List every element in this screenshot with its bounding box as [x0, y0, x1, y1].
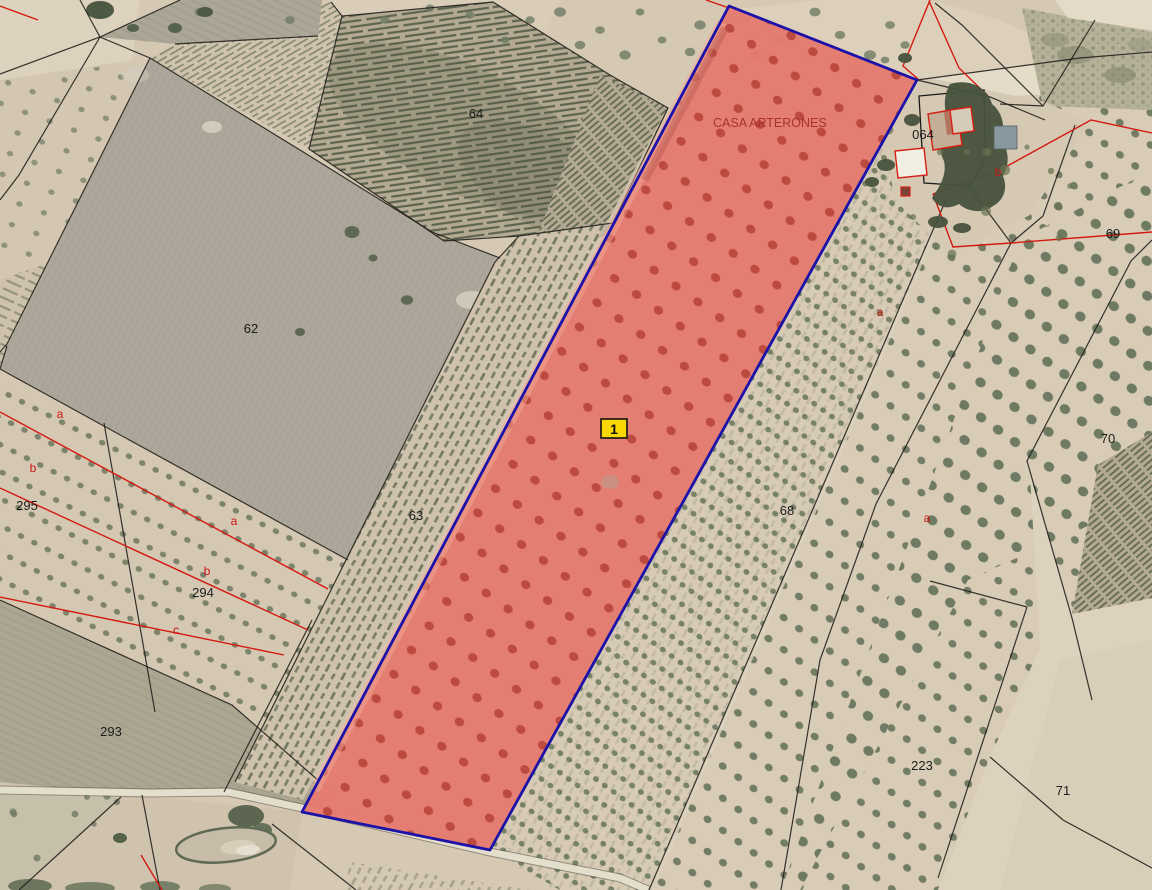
svg-text:293: 293 [100, 724, 122, 739]
svg-text:b: b [30, 461, 37, 475]
svg-text:63: 63 [409, 508, 423, 523]
svg-text:71: 71 [1056, 783, 1070, 798]
svg-text:68: 68 [780, 503, 794, 518]
svg-text:64: 64 [469, 106, 483, 121]
svg-text:a: a [924, 511, 931, 525]
svg-text:1: 1 [610, 421, 618, 437]
svg-text:c: c [173, 623, 179, 637]
svg-text:b: b [995, 165, 1002, 179]
svg-text:a: a [877, 305, 884, 319]
svg-text:70: 70 [1101, 431, 1115, 446]
svg-text:62: 62 [244, 321, 258, 336]
svg-text:CASA ARTERONES: CASA ARTERONES [713, 116, 827, 130]
svg-text:295: 295 [16, 498, 38, 513]
svg-text:064: 064 [912, 127, 934, 142]
svg-text:223: 223 [911, 758, 933, 773]
svg-text:b: b [204, 564, 211, 578]
svg-text:294: 294 [192, 585, 214, 600]
svg-text:a: a [231, 514, 238, 528]
svg-text:a: a [57, 407, 64, 421]
svg-text:69: 69 [1106, 226, 1120, 241]
